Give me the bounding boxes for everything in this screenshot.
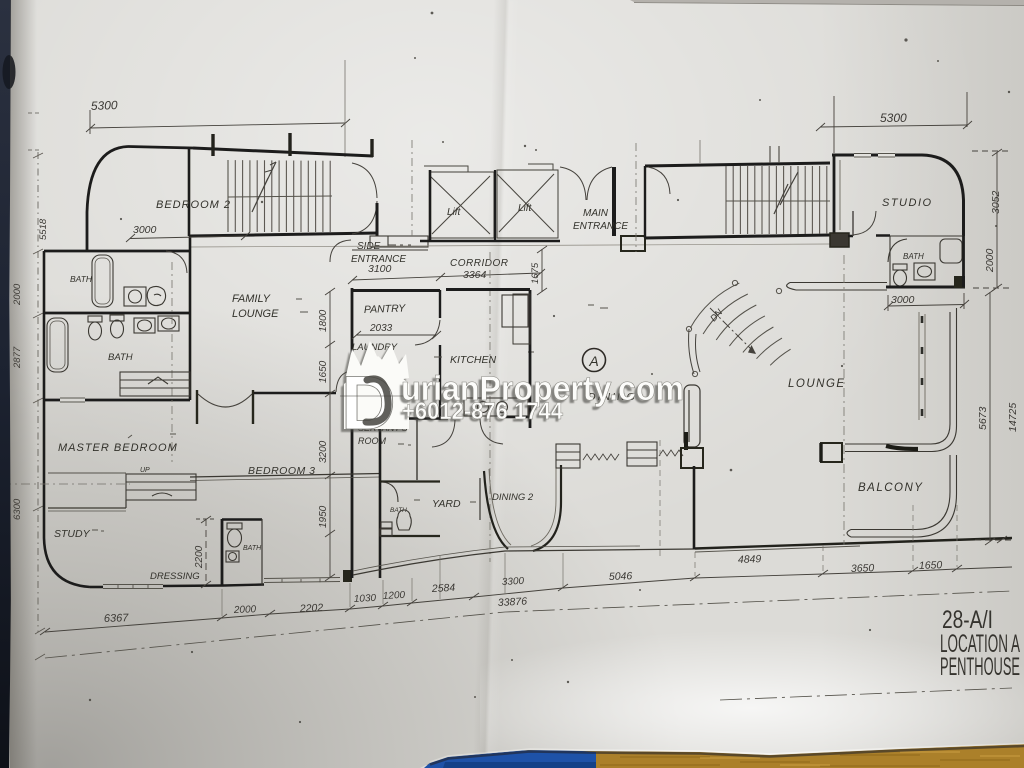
svg-text:2000: 2000 [984, 248, 996, 273]
svg-text:YARD: YARD [432, 498, 461, 510]
svg-text:BEDROOM 3: BEDROOM 3 [248, 465, 316, 477]
svg-text:2200: 2200 [194, 545, 205, 569]
svg-text:STUDY: STUDY [54, 528, 91, 540]
svg-text:BATH: BATH [108, 352, 133, 363]
svg-text:UP: UP [140, 467, 150, 474]
svg-text:BATH: BATH [70, 274, 93, 284]
svg-text:1650: 1650 [919, 559, 943, 572]
svg-text:2000: 2000 [233, 604, 257, 616]
svg-text:BATH: BATH [243, 545, 262, 552]
svg-text:BATH: BATH [903, 252, 924, 261]
svg-text:1200: 1200 [383, 590, 406, 602]
svg-text:CORRIDOR: CORRIDOR [450, 258, 508, 269]
svg-text:5046: 5046 [609, 570, 633, 583]
svg-text:2202: 2202 [299, 602, 324, 615]
svg-text:BEDROOM 2: BEDROOM 2 [156, 199, 231, 211]
svg-text:5300: 5300 [880, 111, 907, 125]
svg-text:14725: 14725 [1007, 403, 1019, 432]
svg-text:3364: 3364 [463, 269, 487, 281]
svg-text:FAMILY: FAMILY [232, 293, 271, 305]
svg-text:KITCHEN: KITCHEN [450, 354, 497, 366]
svg-text:BALCONY: BALCONY [858, 482, 923, 494]
svg-text:1800: 1800 [318, 309, 329, 332]
svg-text:1030: 1030 [354, 593, 377, 605]
svg-text:6367: 6367 [104, 612, 130, 625]
svg-text:LOUNGE: LOUNGE [788, 378, 846, 390]
svg-text:1650: 1650 [318, 360, 329, 383]
svg-text:+6012-876 1744: +6012-876 1744 [402, 398, 564, 425]
svg-text:3000: 3000 [891, 294, 915, 306]
svg-text:1950: 1950 [318, 505, 329, 528]
svg-text:5518: 5518 [38, 218, 49, 240]
svg-text:33876: 33876 [498, 595, 528, 609]
svg-text:DINING 2: DINING 2 [492, 492, 534, 503]
svg-text:MASTER BEDROOM: MASTER BEDROOM [58, 442, 178, 454]
svg-text:ENTRANCE: ENTRANCE [573, 221, 628, 232]
svg-text:3650: 3650 [851, 562, 875, 575]
svg-text:STUDIO: STUDIO [882, 197, 933, 209]
svg-text:2584: 2584 [431, 582, 456, 595]
svg-text:LOUNGE: LOUNGE [232, 308, 279, 320]
svg-text:A: A [588, 353, 598, 369]
svg-text:4849: 4849 [738, 553, 762, 566]
svg-text:DRESSING: DRESSING [150, 571, 200, 582]
svg-text:1675: 1675 [530, 262, 541, 284]
svg-text:3100: 3100 [368, 263, 392, 275]
svg-text:3200: 3200 [318, 440, 329, 463]
svg-text:3300: 3300 [502, 576, 525, 588]
svg-text:PANTRY: PANTRY [364, 303, 407, 316]
svg-text:5300: 5300 [91, 98, 118, 113]
svg-text:BATH: BATH [390, 507, 407, 514]
svg-text:Lift: Lift [518, 203, 533, 214]
svg-text:MAIN: MAIN [583, 208, 609, 219]
svg-text:Lift: Lift [447, 207, 462, 218]
svg-text:2033: 2033 [369, 323, 393, 334]
svg-text:3000: 3000 [133, 224, 157, 236]
svg-text:3052: 3052 [990, 190, 1002, 214]
svg-text:5673: 5673 [977, 406, 989, 430]
svg-text:PENTHOUSE: PENTHOUSE [940, 653, 1020, 681]
